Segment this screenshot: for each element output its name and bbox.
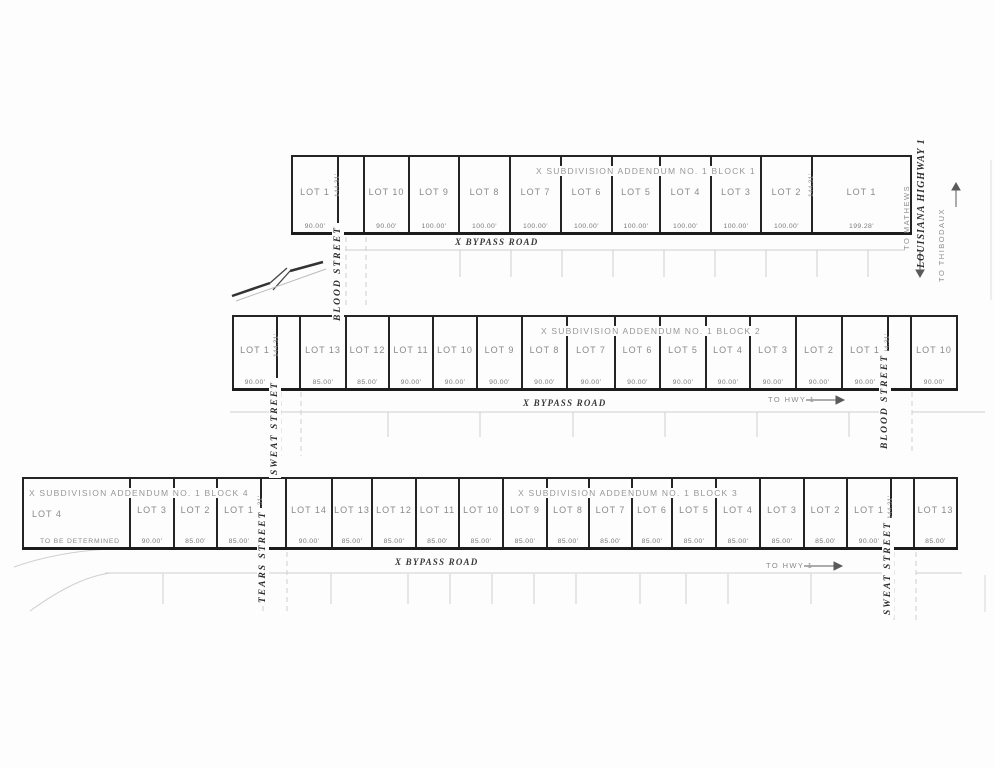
lot-parcel: LOT 1285.00': [347, 317, 390, 388]
lot-frontage-dimension: 85.00': [333, 538, 371, 545]
lot-frontage-dimension: 90.00': [365, 223, 408, 230]
lot-frontage-dimension: 85.00': [805, 538, 846, 545]
lot-label: LOT 7: [511, 187, 560, 197]
lot-parcel: LOT 1090.00': [365, 157, 410, 232]
lot-parcel: LOT 1385.00': [301, 317, 347, 388]
lot-label: LOT 4: [32, 509, 62, 519]
lot-frontage-dimension: 90.00': [797, 379, 841, 386]
lot-label: LOT 13: [301, 345, 345, 355]
lot-label: LOT 3: [712, 187, 760, 197]
lot-parcel: LOT 8100.00': [460, 157, 511, 232]
lot-frontage-dimension: 100.00': [613, 223, 659, 230]
lot-frontage-dimension: 100.00': [661, 223, 710, 230]
lot-parcel: LOT 190.00': [291, 157, 339, 232]
lot-label: LOT 5: [661, 345, 705, 355]
lot-side-dimension: 144.31': [808, 174, 816, 197]
to-mathews-label: TO MATHEWS: [901, 185, 913, 250]
lot-label: LOT 10: [365, 187, 408, 197]
lot-label: LOT 5: [673, 505, 715, 515]
lot-label: LOT 6: [633, 505, 671, 515]
lot-frontage-dimension: 85.00': [761, 538, 803, 545]
lot-label: LOT 2: [175, 505, 216, 515]
street-label-sweat-middle: SWEAT STREET: [269, 378, 281, 478]
lot-label: LOT 4: [717, 505, 759, 515]
lot-label: LOT 1: [218, 505, 260, 515]
to-hwy-label-bottom: TO HWY 1: [766, 561, 813, 570]
lot-label: LOT 6: [562, 187, 611, 197]
street-gap: 144.31': [278, 317, 301, 388]
street-depth-dimension: 144.31': [334, 174, 342, 197]
break-line-symbol: [232, 262, 326, 301]
lot-note: TO BE DETERMINED: [40, 538, 120, 545]
lot-label: LOT 6: [616, 345, 659, 355]
lot-label: LOT 9: [504, 505, 546, 515]
lot-parcel: LOT 1199.28'144.31': [813, 157, 912, 232]
lot-frontage-dimension: 90.00': [568, 379, 614, 386]
lot-frontage-dimension: 90.00': [707, 379, 749, 386]
lot-label: LOT 13: [915, 505, 956, 515]
lot-parcel: LOT 2100.00': [762, 157, 813, 232]
lot-parcel: LOT 1090.00': [434, 317, 478, 388]
lot-frontage-dimension: 85.00': [373, 538, 415, 545]
lot-parcel: LOT 1385.00': [915, 479, 958, 547]
lot-label: LOT 12: [347, 345, 388, 355]
lot-label: LOT 4: [661, 187, 710, 197]
road-label-x-bypass-top: X BYPASS ROAD: [455, 237, 538, 247]
lot-frontage-dimension: 85.00': [717, 538, 759, 545]
lot-label: LOT 7: [590, 505, 631, 515]
street-label-blood-middle-right: BLOOD STREET: [879, 351, 891, 452]
street-depth-dimension: 144.31': [887, 496, 895, 519]
lot-frontage-dimension: 90.00': [434, 379, 476, 386]
lot-label: LOT 8: [523, 345, 566, 355]
to-hwy-label-middle: TO HWY 1: [768, 395, 815, 404]
lot-parcel: LOT 990.00': [478, 317, 523, 388]
lot-frontage-dimension: 85.00': [548, 538, 588, 545]
lot-frontage-dimension: 85.00': [175, 538, 216, 545]
lot-label: LOT 8: [548, 505, 588, 515]
lot-parcel: LOT 285.00': [805, 479, 848, 547]
street-gap: 144.31': [889, 317, 912, 388]
lot-label: LOT 10: [434, 345, 476, 355]
lot-frontage-dimension: 85.00': [633, 538, 671, 545]
lot-frontage-dimension: 85.00': [590, 538, 631, 545]
lot-label: LOT 9: [410, 187, 458, 197]
lot-frontage-dimension: 90.00': [912, 379, 956, 386]
lot-parcel: LOT 1285.00': [373, 479, 417, 547]
lot-frontage-dimension: 199.28': [813, 223, 910, 230]
block-4-title: X SUBDIVISION ADDENDUM NO. 1 BLOCK 4: [26, 488, 252, 498]
lot-label: LOT 7: [568, 345, 614, 355]
lot-parcel: LOT 1385.00': [333, 479, 373, 547]
street-label-tears-bottom: TEARS STREET: [257, 508, 269, 606]
lot-frontage-dimension: 90.00': [616, 379, 659, 386]
lot-frontage-dimension: 100.00': [511, 223, 560, 230]
lot-frontage-dimension: 100.00': [762, 223, 811, 230]
lot-label: LOT 12: [373, 505, 415, 515]
lot-frontage-dimension: 90.00': [293, 223, 337, 230]
plat-drawing-page: LOT 190.00'144.31'LOT 1090.00'LOT 9100.0…: [0, 0, 994, 768]
lot-parcel: LOT 290.00': [797, 317, 843, 388]
street-label-blood-top: BLOOD STREET: [332, 223, 344, 324]
lot-label: LOT 3: [751, 345, 795, 355]
lot-label: LOT 1: [848, 505, 890, 515]
lot-label: LOT 2: [797, 345, 841, 355]
lot-frontage-dimension: 100.00': [410, 223, 458, 230]
lot-label: LOT 13: [333, 505, 371, 515]
lot-frontage-dimension: 85.00': [460, 538, 502, 545]
street-gap: 144.31': [892, 479, 915, 547]
lot-label: LOT 10: [912, 345, 956, 355]
lot-frontage-dimension: 100.00': [460, 223, 509, 230]
lot-label: LOT 1: [813, 187, 910, 197]
lot-frontage-dimension: 100.00': [712, 223, 760, 230]
lot-label: LOT 2: [805, 505, 846, 515]
block-2-title: X SUBDIVISION ADDENDUM NO. 1 BLOCK 2: [538, 326, 756, 336]
lot-label: LOT 11: [390, 345, 432, 355]
lot-label: LOT 11: [417, 505, 458, 515]
lot-label: LOT 3: [131, 505, 173, 515]
lot-frontage-dimension: 90.00': [287, 538, 331, 545]
lot-frontage-dimension: 90.00': [131, 538, 173, 545]
street-depth-dimension: 144.31': [273, 334, 281, 357]
lot-label: LOT 5: [613, 187, 659, 197]
lot-parcel: LOT 9100.00': [410, 157, 460, 232]
lot-label: LOT 4: [707, 345, 749, 355]
highway-label-louisiana-hwy-1: LOUISIANA HIGHWAY 1: [916, 138, 928, 268]
to-thibodaux-label: TO THIBODAUX: [936, 208, 948, 282]
lot-label: LOT 14: [287, 505, 331, 515]
lot-parcel: LOT 1185.00': [417, 479, 460, 547]
street-label-sweat-bottom-right: SWEAT STREET: [882, 518, 894, 618]
lot-label: LOT 2: [762, 187, 811, 197]
lot-frontage-dimension: 90.00': [751, 379, 795, 386]
road-label-x-bypass-middle: X BYPASS ROAD: [523, 398, 606, 408]
lot-frontage-dimension: 85.00': [218, 538, 260, 545]
lot-frontage-dimension: 85.00': [417, 538, 458, 545]
lot-parcel: LOT 1085.00': [460, 479, 504, 547]
lot-label: LOT 9: [478, 345, 521, 355]
lot-frontage-dimension: 100.00': [562, 223, 611, 230]
lot-frontage-dimension: 85.00': [301, 379, 345, 386]
block-3-title: X SUBDIVISION ADDENDUM NO. 1 BLOCK 3: [506, 488, 750, 498]
lot-label: LOT 8: [460, 187, 509, 197]
lot-frontage-dimension: 90.00': [523, 379, 566, 386]
lot-frontage-dimension: 90.00': [661, 379, 705, 386]
lot-parcel: LOT 385.00': [761, 479, 805, 547]
lot-parcel: LOT 1090.00': [912, 317, 958, 388]
lot-frontage-dimension: 85.00': [915, 538, 956, 545]
lot-frontage-dimension: 85.00': [673, 538, 715, 545]
lot-label: LOT 1: [234, 345, 276, 355]
lot-label: LOT 1: [293, 187, 337, 197]
lot-label: LOT 3: [761, 505, 803, 515]
block-1-title: X SUBDIVISION ADDENDUM NO. 1 BLOCK 1: [533, 166, 751, 176]
lot-parcel: LOT 1490.00': [287, 479, 333, 547]
lot-frontage-dimension: 85.00': [504, 538, 546, 545]
lot-frontage-dimension: 90.00': [478, 379, 521, 386]
lot-frontage-dimension: 85.00': [347, 379, 388, 386]
lot-frontage-dimension: 90.00': [390, 379, 432, 386]
road-label-x-bypass-bottom: X BYPASS ROAD: [395, 557, 478, 567]
lot-label: LOT 10: [460, 505, 502, 515]
lot-parcel: LOT 1190.00': [390, 317, 434, 388]
street-gap: 144.31': [339, 157, 365, 232]
